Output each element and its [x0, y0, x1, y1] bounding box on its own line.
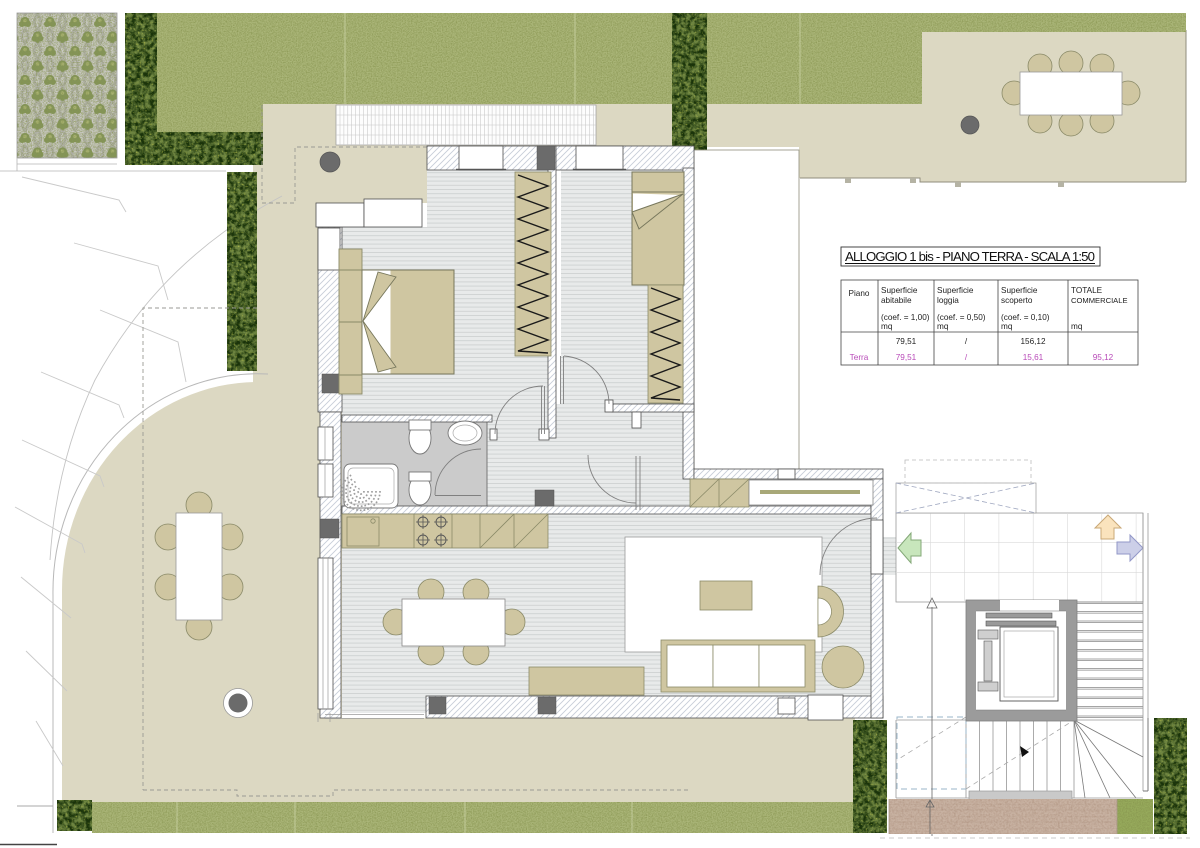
svg-text:Superficie: Superficie [881, 286, 918, 295]
svg-text:79,51: 79,51 [896, 353, 917, 362]
svg-text:(coef. = 1,00): (coef. = 1,00) [881, 313, 930, 322]
svg-text:(coef. = 0,50): (coef. = 0,50) [937, 313, 986, 322]
svg-text:Piano: Piano [849, 289, 870, 298]
svg-text:abitabile: abitabile [881, 296, 912, 305]
svg-text:156,12: 156,12 [1020, 337, 1045, 346]
svg-text:mq: mq [1071, 322, 1083, 331]
svg-text:(coef. = 0,10): (coef. = 0,10) [1001, 313, 1050, 322]
svg-text:mq: mq [937, 322, 949, 331]
svg-text:mq: mq [881, 322, 893, 331]
svg-text:TOTALE: TOTALE [1071, 286, 1103, 295]
svg-text:scoperto: scoperto [1001, 296, 1033, 305]
svg-text:loggia: loggia [937, 296, 959, 305]
svg-text:95,12: 95,12 [1093, 353, 1114, 362]
svg-text:Terra: Terra [850, 353, 869, 362]
svg-text:mq: mq [1001, 322, 1013, 331]
svg-text:79,51: 79,51 [896, 337, 917, 346]
svg-text:COMMERCIALE: COMMERCIALE [1071, 296, 1128, 305]
svg-text:15,61: 15,61 [1023, 353, 1044, 362]
svg-text:Superficie: Superficie [1001, 286, 1038, 295]
svg-text:ALLOGGIO 1 bis - PIANO TERRA -: ALLOGGIO 1 bis - PIANO TERRA - SCALA 1:5… [845, 249, 1095, 264]
svg-text:Superficie: Superficie [937, 286, 974, 295]
